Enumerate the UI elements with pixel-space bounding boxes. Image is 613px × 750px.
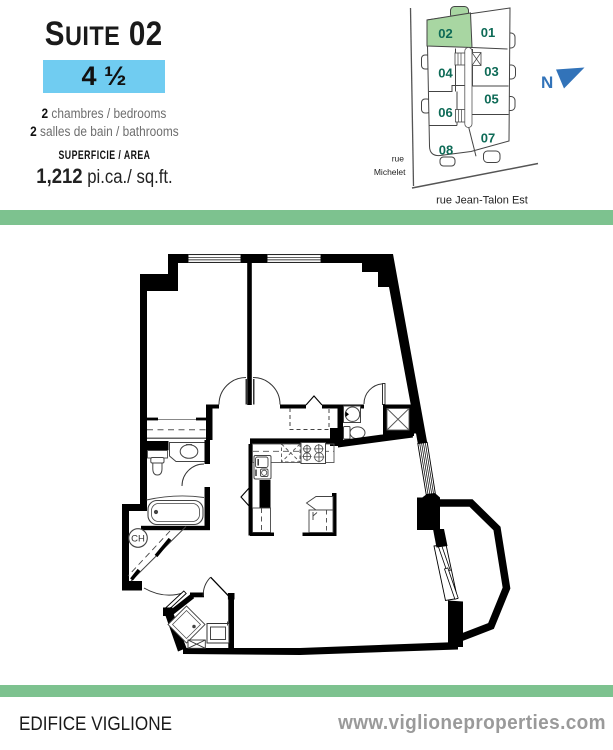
svg-text:05: 05 xyxy=(484,92,498,107)
svg-text:rue: rue xyxy=(392,154,405,164)
svg-text:03: 03 xyxy=(484,64,498,79)
svg-text:01: 01 xyxy=(481,25,495,40)
svg-text:02: 02 xyxy=(438,26,452,41)
svg-text:06: 06 xyxy=(438,105,452,120)
svg-text:08: 08 xyxy=(439,143,453,158)
svg-text:07: 07 xyxy=(481,131,495,146)
svg-text:N: N xyxy=(541,73,553,92)
svg-text:CH: CH xyxy=(131,534,145,545)
svg-text:rue Jean-Talon Est: rue Jean-Talon Est xyxy=(436,195,528,207)
svg-text:Michelet: Michelet xyxy=(374,167,406,177)
svg-text:04: 04 xyxy=(438,66,453,81)
